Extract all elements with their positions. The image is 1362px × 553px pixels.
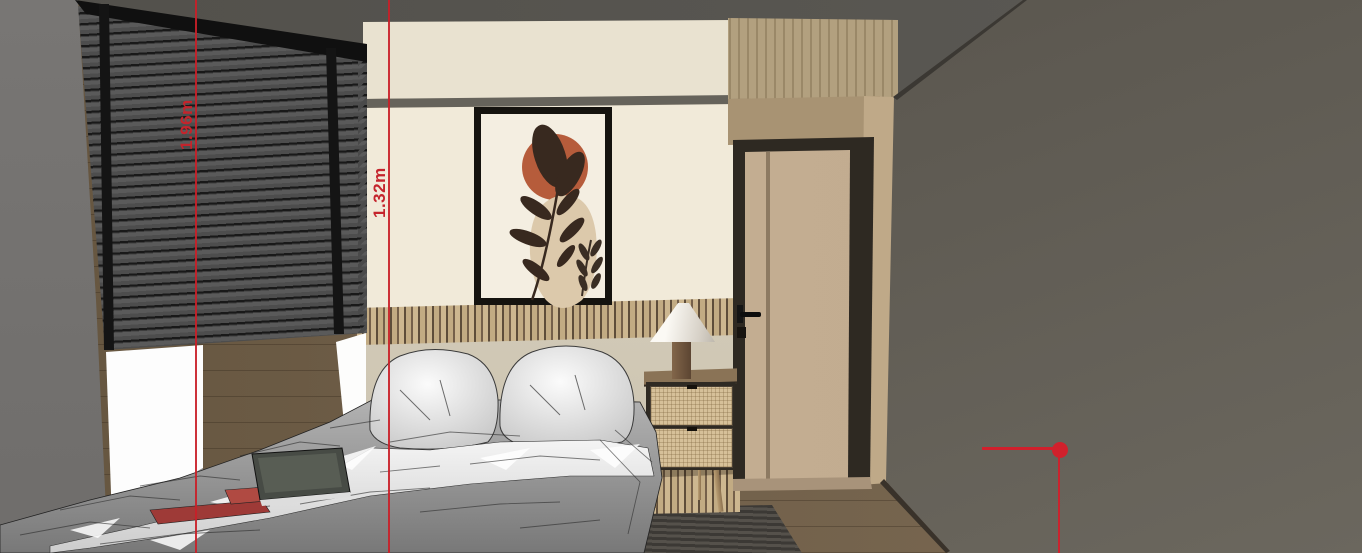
- wall-art[interactable]: [470, 104, 616, 310]
- nightstand-leg: [698, 470, 701, 500]
- pillow-right[interactable]: [500, 346, 634, 448]
- door-lock-plate: [737, 327, 746, 338]
- dimension-label-1: 1.96m: [177, 99, 197, 150]
- dimension-guide-line-1[interactable]: [195, 0, 197, 553]
- book-cover: [258, 453, 342, 493]
- wall-art-graphic: [470, 104, 616, 310]
- door-handle[interactable]: [740, 312, 761, 317]
- bed[interactable]: [0, 330, 680, 553]
- drawer-pull-notch: [687, 385, 697, 389]
- bed-graphic: [0, 330, 680, 553]
- viewport-3d-room[interactable]: 1.96m 1.32m: [0, 0, 1362, 553]
- axis-marker-vertical-line: [1058, 450, 1060, 553]
- axis-marker-point[interactable]: [1052, 442, 1068, 458]
- drawer-pull-notch: [687, 427, 697, 431]
- dimension-label-2: 1.32m: [370, 167, 390, 218]
- axis-marker-horizontal-line: [982, 447, 1060, 450]
- dimension-guide-line-2[interactable]: [388, 0, 390, 553]
